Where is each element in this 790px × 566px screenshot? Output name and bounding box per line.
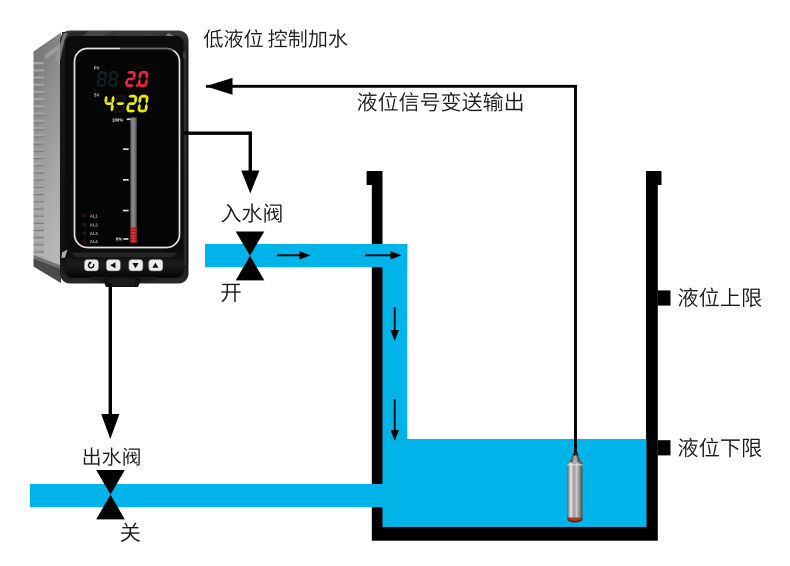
svg-text:0%: 0% [116,237,122,242]
svg-text:AL2: AL2 [90,223,99,228]
svg-text:AL1: AL1 [90,213,99,218]
svg-text:PV: PV [94,66,100,71]
svg-text:100%: 100% [112,118,123,123]
svg-text:AL3: AL3 [90,231,99,236]
svg-text:AL4: AL4 [90,239,99,244]
svg-text:SV: SV [94,93,100,98]
